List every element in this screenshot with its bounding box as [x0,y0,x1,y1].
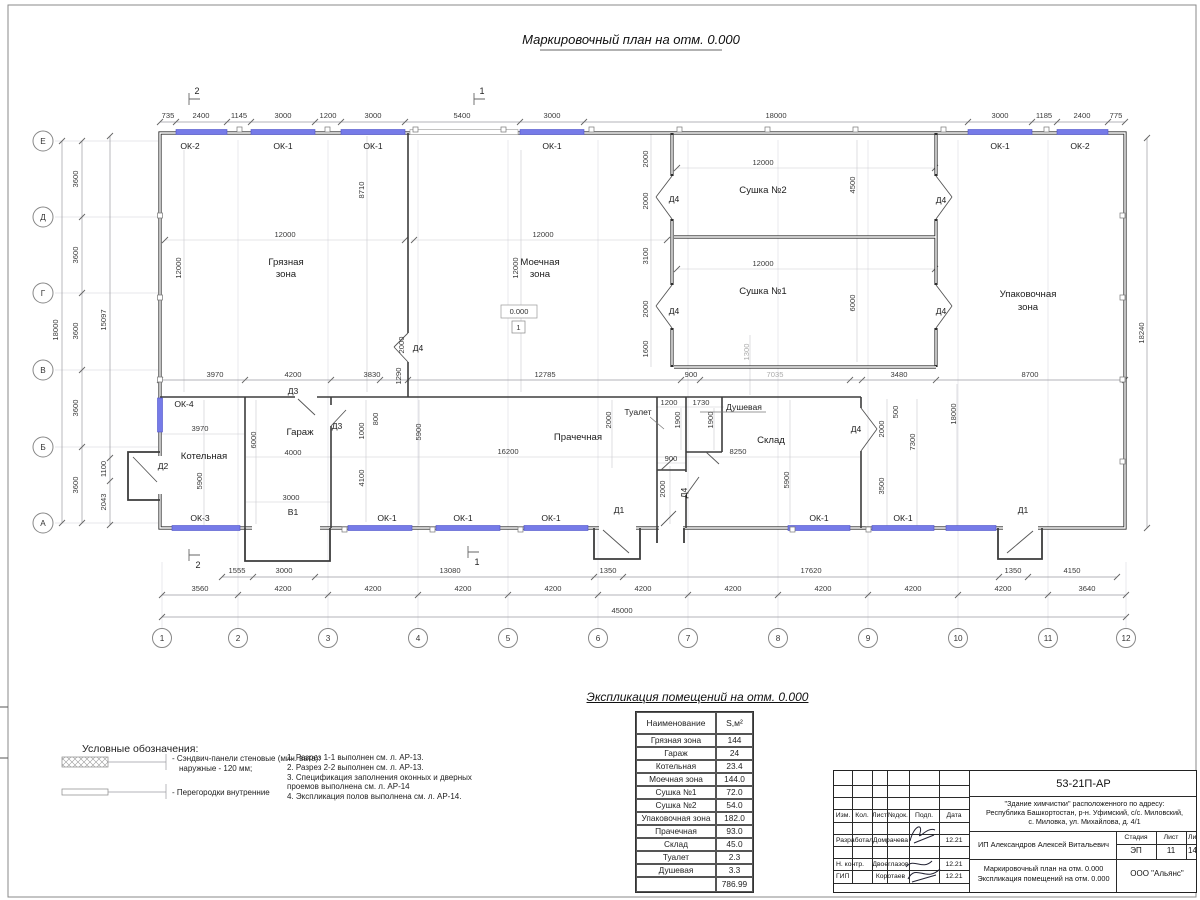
room-area: 3.3 [716,864,753,877]
dim-label: 8700 [1022,370,1039,379]
dim-label: 12000 [752,158,773,167]
room-name: Склад [636,838,716,851]
window-tag-ok2: ОК-2 [180,141,200,151]
door-tag-d2: Д2 [158,461,169,471]
dim-label: 3000 [365,111,382,120]
elevation-value: 0.000 [510,307,529,316]
dim-label: 4000 [285,448,302,457]
table-row: Туалет2.3 [636,851,753,864]
table-row: Душевая3.3 [636,864,753,877]
room-label-garazh: Гараж [286,427,314,438]
col-header-name: Наименование [636,712,716,734]
table-row: Грязная зона144 [636,734,753,747]
dim-label: 8710 [357,182,366,199]
window-tag-ok1: ОК-1 [453,513,473,523]
tb-header-ndok: №док. [887,811,909,821]
floor-mark: 1 [516,323,520,332]
dim-label: 800 [371,413,380,426]
window-tag-ok1: ОК-1 [542,141,562,151]
dim-label: 2000 [397,337,406,354]
dim-label: 12000 [752,259,773,268]
dim-label: 2000 [641,301,650,318]
dim-label: 5400 [454,111,471,120]
table-row: Котельная23.4 [636,760,753,773]
total-area: 786.99 [716,877,753,892]
legend-swatch-sandwich-panel [62,757,108,767]
window-tag-ok2: ОК-2 [1070,141,1090,151]
dim-label: 2000 [658,481,667,498]
tb-header-podp: Подп. [909,811,939,821]
dim-label: 3000 [276,566,293,575]
window-tag-ok3: ОК-3 [190,513,210,523]
dim-label: 2400 [193,111,210,120]
notes: 1. Разрез 1-1 выполнен см. л. АР-13. 2. … [287,753,472,801]
tb-subtitle-line2: Экспликация помещений на отм. 0.000 [971,874,1116,884]
table-row: Прачечная93.0 [636,825,753,838]
dim-label: 1600 [641,341,650,358]
tb-header-data: Дата [939,811,969,821]
outer-dim-labels: 735 2400 1145 3000 1200 3000 5400 3000 1… [51,111,1146,615]
dim-label: 1350 [1005,566,1022,575]
room-name: Туалет [636,851,716,864]
dim-label: 4200 [455,584,472,593]
dim-label: 16200 [497,447,518,456]
tb-stage-value: ЭП [1116,846,1156,856]
grid-bubble-col: 12 [1121,634,1131,643]
doors [133,176,1033,553]
dim-label: 3970 [207,370,224,379]
tb-stage-label: Стадия [1116,833,1156,843]
room-label-dushevaya: Душевая [726,402,762,412]
section-markers: 2 1 2 1 [189,86,485,570]
tb-header-list: Лист [872,811,887,821]
door-tag-d4: Д4 [851,424,862,434]
table-row: Упаковочная зона182.0 [636,812,753,825]
dim-label: 5900 [195,473,204,490]
dim-label: 3970 [192,424,209,433]
dim-label: 3600 [71,171,80,188]
room-label-gryaznaya: Грязная [268,257,303,268]
explication-table: Наименование S,м² Грязная зона144 Гараж2… [635,711,754,893]
room-area: 144 [716,734,753,747]
panel-joints [158,127,1126,532]
note-line: 3. Спецификация заполнения оконных и две… [287,773,472,782]
row-bubbles: Е Д Г В Б А [33,131,53,533]
room-label-upakovochnaya: Упаковочная [1000,289,1057,300]
dim-label: 1900 [706,412,715,429]
room-area: 54.0 [716,799,753,812]
dim-label: 18000 [949,403,958,424]
dim-label: 15097 [99,309,108,330]
tb-sheet-number: 11 [1156,846,1186,856]
door-tag-d4: Д4 [413,343,424,353]
room-label-moechnaya2: зона [530,269,551,280]
legend: Условные обозначения: - Сэндвич-панели с… [62,743,321,799]
dim-label: 900 [685,370,698,379]
room-area: 2.3 [716,851,753,864]
dim-label: 3500 [877,478,886,495]
dim-label: 2000 [877,421,886,438]
grid-bubble-col: 3 [326,634,331,643]
opening-labels: ОК-2 ОК-1 ОК-1 ОК-1 ОК-1 ОК-2 ОК-4 ОК-3 … [158,141,1090,523]
section-mark-1-bottom: 1 [474,557,479,567]
signature-gip [902,855,946,885]
grid-bubble-col: 5 [506,634,511,643]
dim-label: 13080 [439,566,460,575]
walls [128,133,1125,561]
dim-label: 3640 [1079,584,1096,593]
dim-label: 2000 [604,412,613,429]
tb-header-izm: Изм. [834,811,852,821]
room-labels: Грязная зона Моечная зона Сушка №2 Сушка… [181,185,1057,462]
dim-label: 12785 [534,370,555,379]
room-label-moechnaya: Моечная [520,257,559,268]
dim-label: 4150 [1064,566,1081,575]
column-bubbles: 1 2 3 4 5 6 7 8 9 10 11 12 [153,629,1136,648]
window-tag-ok1: ОК-1 [990,141,1010,151]
dim-label: 7035 [767,370,784,379]
door-tag-d4: Д4 [669,306,680,316]
dim-label: 1200 [661,398,678,407]
dim-label: 3000 [275,111,292,120]
dim-label: 12000 [532,230,553,239]
window-tag-ok4: ОК-4 [174,399,194,409]
dim-label: 3600 [71,323,80,340]
room-label-gryaznaya2: зона [276,269,297,280]
dim-label: 1900 [673,412,682,429]
dim-label: 4200 [365,584,382,593]
dim-label: 1185 [1036,111,1052,120]
table-title: Экспликация помещений на отм. 0.000 [555,690,840,704]
page-title: Маркировочный план на отм. 0.000 [522,32,741,47]
dim-label: 4200 [285,370,302,379]
grid-lines [55,140,1126,628]
dim-label: 5900 [782,472,791,489]
dim-label: 1100 [99,461,108,477]
dim-label: 1000 [357,423,366,440]
dim-lines [62,122,1147,617]
dim-label: 4200 [815,584,832,593]
dim-label: 12000 [511,257,520,278]
room-area: 24 [716,747,753,760]
window-tag-ok1: ОК-1 [541,513,561,523]
door-tag-d3: Д3 [288,386,299,396]
tb-sheets-label: Листов [1188,833,1197,843]
dim-label: 2000 [641,193,650,210]
dim-label: 1350 [600,566,617,575]
signature-developer [904,821,944,847]
room-name: Моечная зона [636,773,716,786]
door-tag-d3: Д3 [332,421,343,431]
tb-sheets-total: 14 [1188,846,1197,856]
total-blank [636,877,716,892]
room-label-sushka1: Сушка №1 [739,286,786,297]
grid-bubble-row: В [40,366,46,375]
dim-label: 4500 [848,177,857,194]
table-total-row: 786.99 [636,877,753,892]
room-name: Гараж [636,747,716,760]
window-tag-ok1: ОК-1 [273,141,293,151]
room-label-upakovochnaya2: зона [1018,302,1039,313]
dim-label: 6000 [848,295,857,312]
note-line: 1. Разрез 1-1 выполнен см. л. АР-13. [287,753,424,762]
title-block: Изм. Кол. Лист №док. Подп. Дата Разработ… [833,770,1197,893]
table-row: Склад45.0 [636,838,753,851]
grid-bubble-col: 8 [776,634,781,643]
dim-label: 6000 [249,432,258,449]
dim-label: 1290 [394,368,403,385]
room-area: 45.0 [716,838,753,851]
dim-label: 1145 [231,111,247,120]
grid-bubble-row: Е [40,137,46,146]
table-row: Моечная зона144.0 [636,773,753,786]
dim-label: 3000 [283,493,300,502]
dim-label: 4100 [357,470,366,487]
window-tag-ok1: ОК-1 [893,513,913,523]
dim-label: 4200 [275,584,292,593]
tb-address-line2: Республика Башкортостан, р-н. Уфимский, … [971,808,1197,817]
room-area: 93.0 [716,825,753,838]
room-label-sklad: Склад [757,435,785,446]
door-tag-d1: Д1 [1018,505,1029,515]
plan-svg: Маркировочный план на отм. 0.000 [0,0,1200,900]
door-tag-d4: Д4 [669,194,680,204]
section-mark-2-top: 2 [194,86,199,96]
dim-label: 1555 [229,566,246,575]
dim-label: 4200 [545,584,562,593]
legend-item-1-line2: наружные - 120 мм; [179,764,252,773]
dim-label: 3600 [71,477,80,494]
dim-label: 1730 [693,398,710,407]
dim-label: 4200 [905,584,922,593]
door-tag-d1: Д1 [614,505,625,515]
dim-label: 4200 [995,584,1012,593]
note-line: проемов выполнена см. л. АР-14 [287,782,410,791]
dim-label: 3560 [192,584,209,593]
grid-bubble-row: Д [40,213,46,222]
table-row: Гараж24 [636,747,753,760]
window-tag-ok1: ОК-1 [377,513,397,523]
legend-item-2: - Перегородки внутренние [172,788,270,797]
grid-bubble-row: А [40,519,46,528]
room-label-sushka2: Сушка №2 [739,185,786,196]
dim-label: 17620 [800,566,821,575]
room-name: Грязная зона [636,734,716,747]
grid-bubble-col: 6 [596,634,601,643]
grid-bubble-col: 1 [160,634,165,643]
room-label-tualet: Туалет [624,407,651,417]
dim-label: 3000 [544,111,561,120]
dim-label: 45000 [611,606,632,615]
dim-label: 3600 [71,247,80,264]
table-row: Сушка №254.0 [636,799,753,812]
dim-label: 12000 [174,257,183,278]
legend-swatch-partition [62,789,108,795]
dim-label: 3000 [992,111,1009,120]
dim-label: 12000 [274,230,295,239]
dim-label: 18000 [765,111,786,120]
tb-sheet-label: Лист [1156,833,1186,843]
section-mark-1-top: 1 [479,86,484,96]
tb-company: ООО "Альянс" [1116,869,1197,879]
room-name: Прачечная [636,825,716,838]
room-label-prachechnaya: Прачечная [554,432,602,443]
drawing-sheet: Маркировочный план на отм. 0.000 [0,0,1200,900]
dim-label: 4200 [725,584,742,593]
grid-bubble-col: 2 [236,634,241,643]
inner-dim-labels: 12000 12000 8710 12000 12000 12000 4500 … [174,151,1038,502]
dim-label: 1300 [742,344,751,361]
grid-bubble-row: Г [41,289,46,298]
grid-bubble-col: 7 [686,634,691,643]
table-row: Сушка №172.0 [636,786,753,799]
window-tag-ok1: ОК-1 [363,141,383,151]
tb-doc-code: 53-21П-АР [969,775,1197,793]
room-name: Сушка №1 [636,786,716,799]
dim-label: 900 [665,454,678,463]
room-area: 23.4 [716,760,753,773]
room-area: 72.0 [716,786,753,799]
dim-label: 8250 [730,447,747,456]
room-name: Упаковочная зона [636,812,716,825]
grid-bubble-col: 9 [866,634,871,643]
room-area: 182.0 [716,812,753,825]
room-name: Сушка №2 [636,799,716,812]
tb-client: ИП Александров Алексей Витальевич [971,840,1116,850]
grid-bubble-col: 10 [953,634,963,643]
tb-address-line3: с. Миловка, ул. Михайлова, д. 4/1 [971,817,1197,826]
tb-header-kol: Кол. [852,811,872,821]
dim-label: 3830 [364,370,381,379]
dim-label: 2043 [99,494,108,511]
dim-label: 18240 [1137,322,1146,343]
dim-label: 1200 [320,111,337,120]
inner-dim-lines [160,133,957,526]
note-line: 2. Разрез 2-2 выполнен см. л. АР-13. [287,763,424,772]
room-name: Душевая [636,864,716,877]
dim-label: 2400 [1074,111,1091,120]
tb-subtitle-line1: Маркировочный план на отм. 0.000 [971,864,1116,874]
door-tag-d4: Д4 [936,306,947,316]
dim-label: 5900 [414,424,423,441]
windows [158,130,1109,531]
table-header: Наименование S,м² [636,712,753,734]
dim-label: 18000 [51,319,60,340]
col-header-area: S,м² [716,712,753,734]
dim-label: 500 [891,406,900,419]
dim-label: 735 [162,111,175,120]
grid-bubble-col: 4 [416,634,421,643]
room-area: 144.0 [716,773,753,786]
door-tag-d4: Д4 [679,487,689,498]
grid-bubble-col: 11 [1044,634,1053,643]
dim-label: 3100 [641,248,650,265]
grid-bubble-row: Б [40,443,45,452]
tb-address-line1: "Здание химчистки" расположенного по адр… [971,799,1197,808]
dim-label: 3480 [891,370,908,379]
elevation-marker: 0.000 1 [501,305,537,333]
note-line: 4. Экспликация полов выполнена см. л. АР… [287,792,461,801]
dim-label: 7300 [908,434,917,451]
gate-tag-v1: В1 [288,507,299,517]
dim-label: 775 [1110,111,1123,120]
door-tag-d4: Д4 [936,195,947,205]
dim-label: 4200 [635,584,652,593]
window-tag-ok1: ОК-1 [809,513,829,523]
section-mark-2-bottom: 2 [195,560,200,570]
dim-label: 3600 [71,400,80,417]
room-label-kotelnaya: Котельная [181,451,227,462]
dim-label: 2000 [641,151,650,168]
room-name: Котельная [636,760,716,773]
